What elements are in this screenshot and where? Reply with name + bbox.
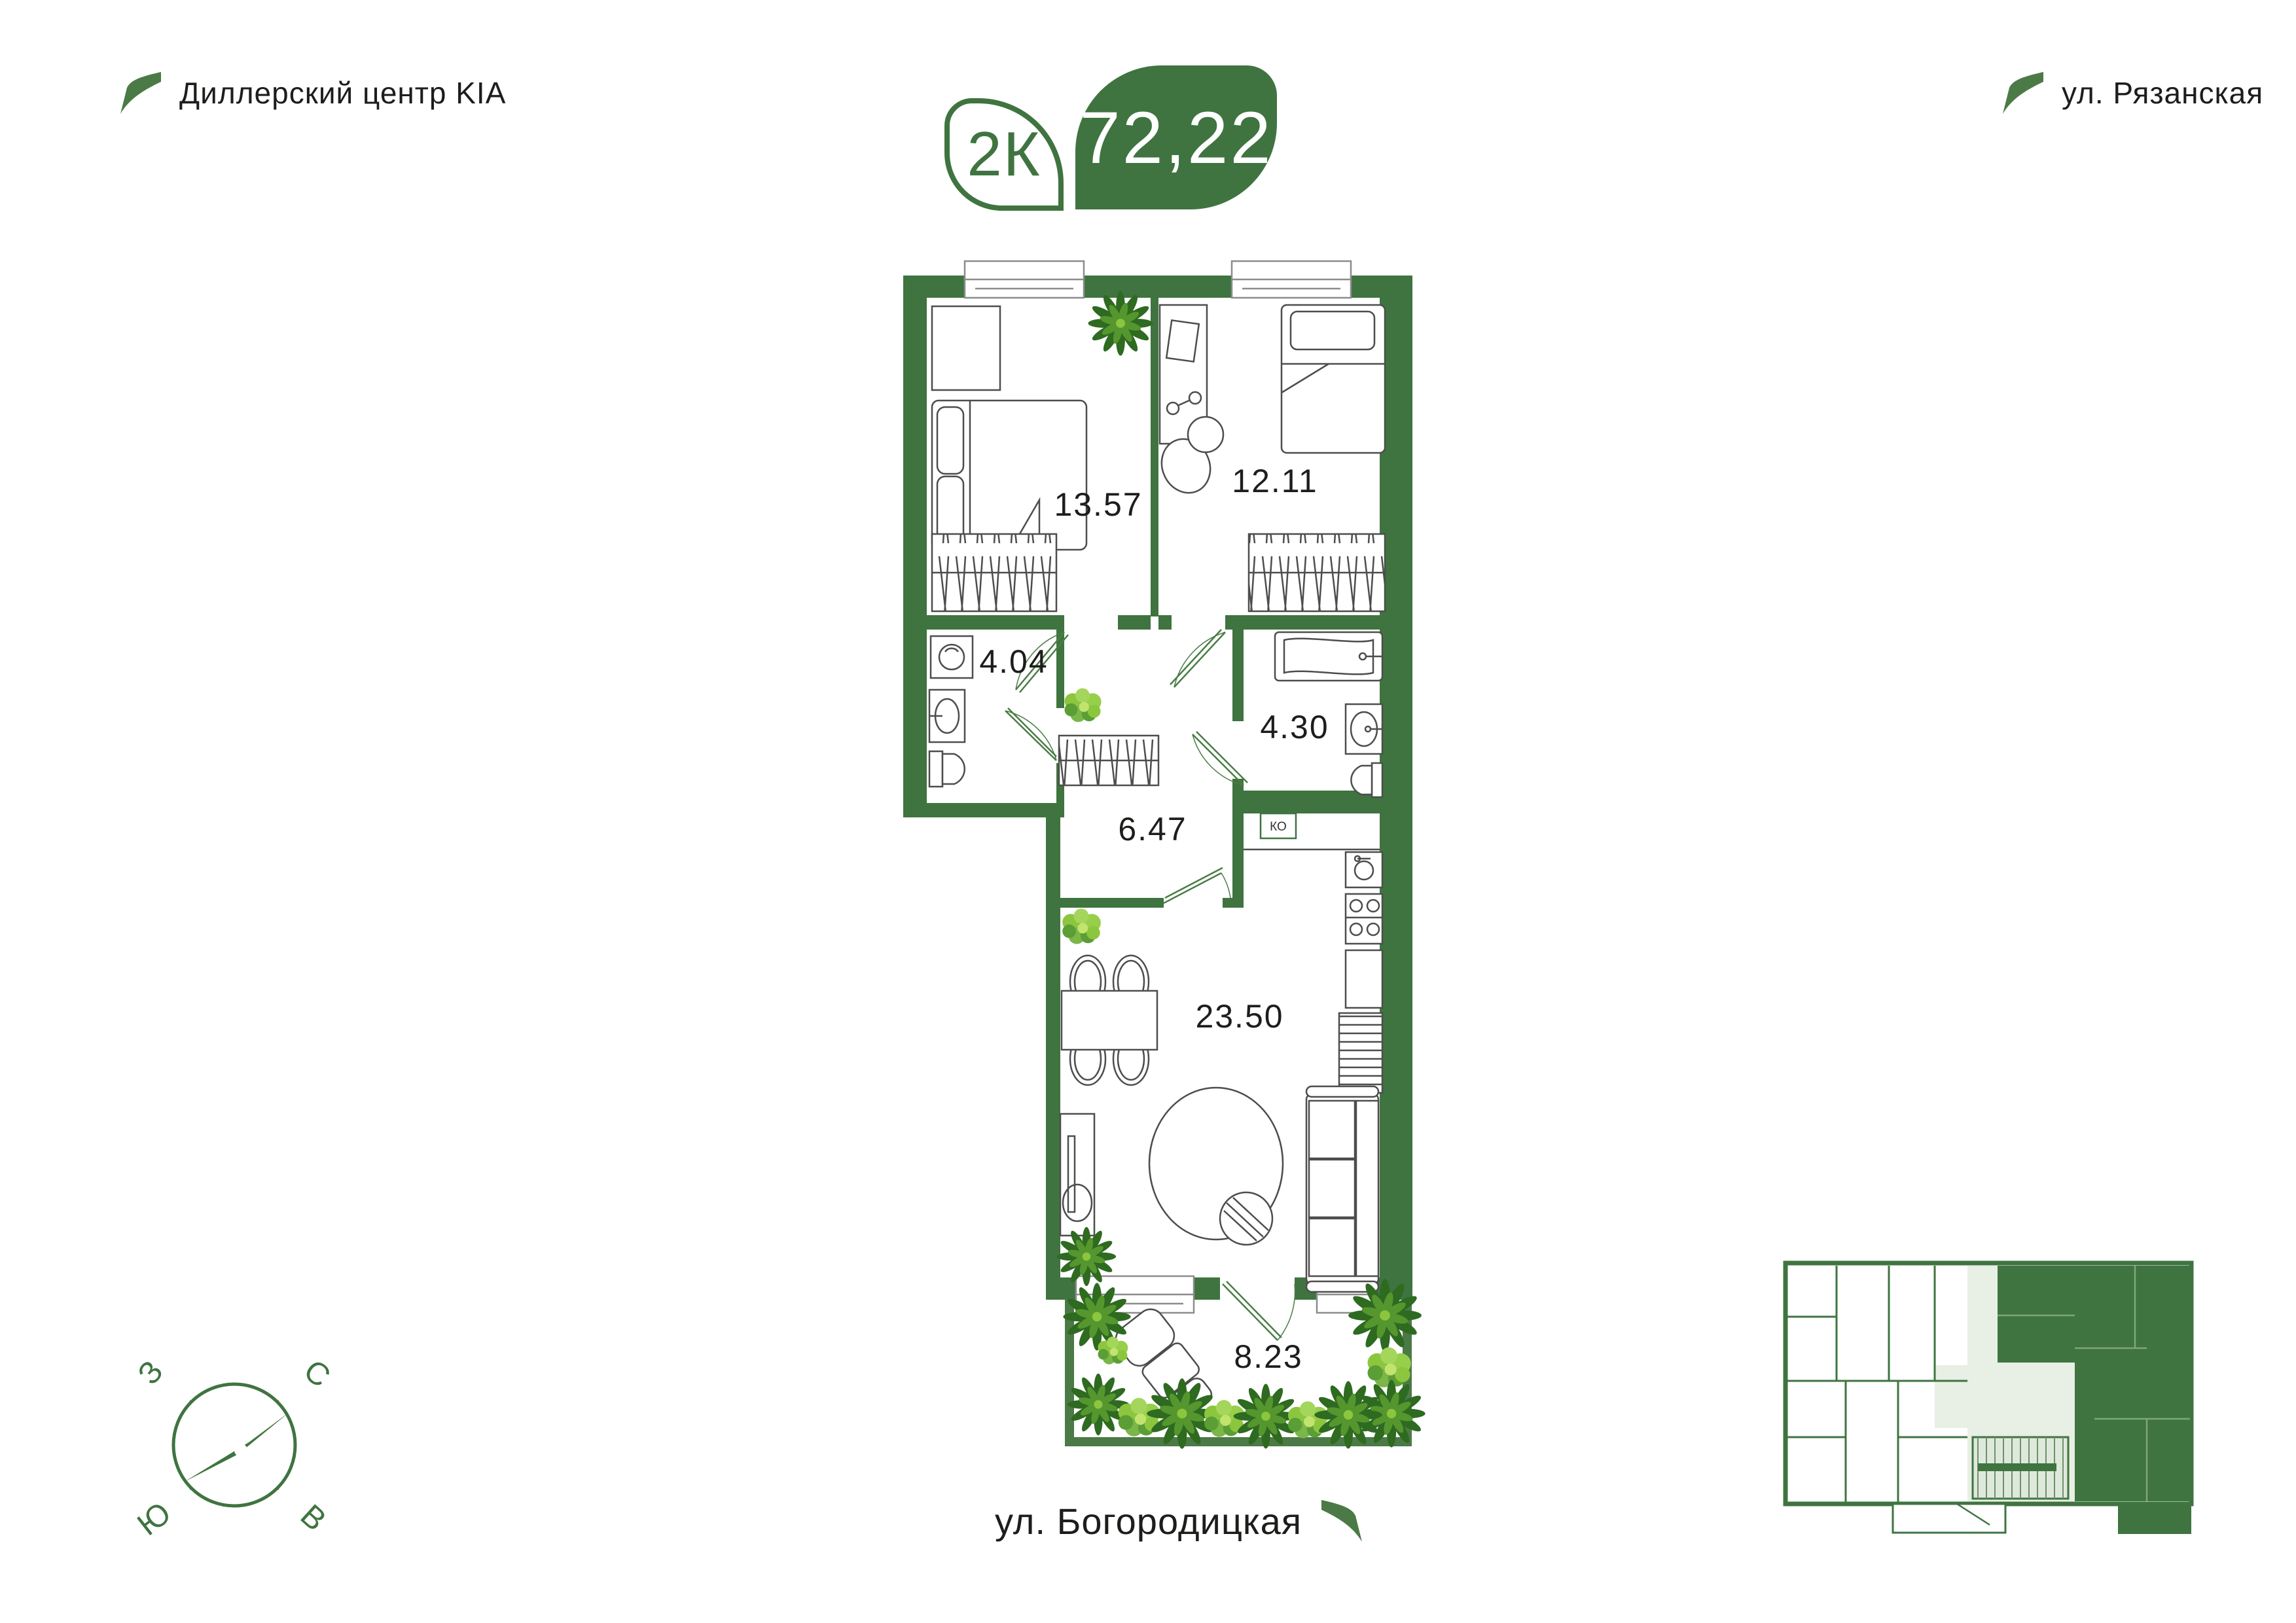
balcony-outline bbox=[1893, 1504, 2005, 1533]
radiator bbox=[1339, 1013, 1382, 1093]
toilet bbox=[929, 751, 965, 787]
compass-west: З bbox=[132, 1355, 170, 1391]
kitchen-sink bbox=[1346, 852, 1382, 887]
rug bbox=[1149, 1088, 1283, 1245]
single-bed bbox=[1282, 305, 1385, 453]
wardrobe bbox=[932, 534, 1056, 611]
room-area-hallway: 6.47 bbox=[1118, 811, 1187, 847]
dresser bbox=[932, 306, 1000, 390]
tv-stand bbox=[1060, 1114, 1094, 1236]
compass-east: В bbox=[294, 1498, 332, 1538]
room-area-bedroom-2: 12.11 bbox=[1232, 463, 1318, 499]
closet-box: КО bbox=[1261, 813, 1296, 838]
dining-table bbox=[1062, 955, 1157, 1085]
sink bbox=[1346, 704, 1382, 754]
compass-south: Ю bbox=[131, 1495, 177, 1543]
stairwell bbox=[1973, 1437, 2068, 1499]
room-area-bathroom-1: 4.04 bbox=[979, 643, 1048, 680]
room-area-kitchen: 23.50 bbox=[1195, 998, 1283, 1035]
floorplan-drawing: КО 13.57 12.11 4.04 4.30 6 bbox=[0, 0, 2296, 1623]
room-area-bathroom-2: 4.30 bbox=[1260, 709, 1329, 745]
closet-label: КО bbox=[1270, 820, 1287, 834]
room-area-bedroom-1: 13.57 bbox=[1054, 486, 1142, 523]
compass-north: С bbox=[297, 1353, 336, 1395]
compass-rose: З С Ю В bbox=[131, 1353, 336, 1543]
double-bed bbox=[932, 401, 1086, 550]
floorplan-page: Диллерский центр KIA ул. Рязанская 2К 72… bbox=[0, 0, 2296, 1623]
stove bbox=[1346, 894, 1382, 944]
building-mini-plan bbox=[1785, 1263, 2191, 1534]
toilet bbox=[1351, 763, 1382, 797]
room-area-terrace: 8.23 bbox=[1234, 1338, 1302, 1375]
washing-machine bbox=[931, 636, 973, 678]
wardrobe bbox=[1249, 534, 1385, 611]
wardrobe bbox=[1059, 736, 1158, 785]
sink bbox=[929, 690, 965, 742]
bathtub bbox=[1275, 632, 1382, 681]
sofa bbox=[1306, 1086, 1378, 1292]
